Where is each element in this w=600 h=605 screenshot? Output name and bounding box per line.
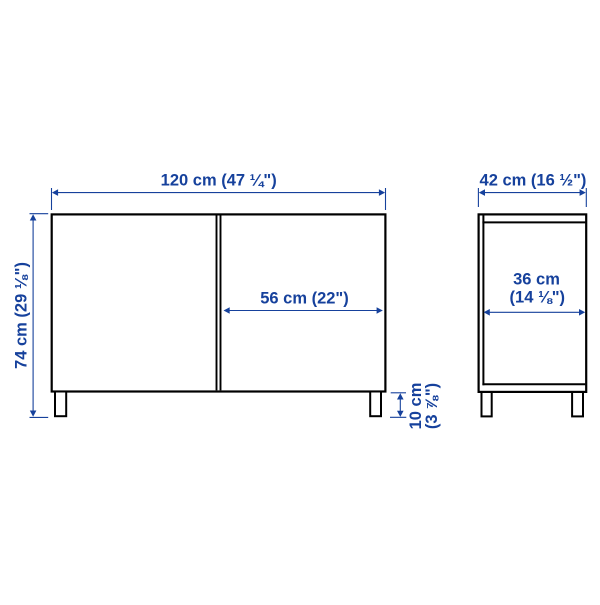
svg-text:74 cm (29 ⅛"): 74 cm (29 ⅛") bbox=[12, 262, 30, 369]
svg-text:42 cm (16 ½"): 42 cm (16 ½") bbox=[480, 172, 587, 190]
svg-text:(3 ⅞"): (3 ⅞") bbox=[423, 383, 441, 429]
svg-text:36 cm: 36 cm bbox=[513, 270, 560, 288]
svg-text:120 cm (47 ¼"): 120 cm (47 ¼") bbox=[161, 172, 277, 190]
svg-text:56 cm (22"): 56 cm (22") bbox=[260, 289, 349, 307]
svg-text:(14 ⅛"): (14 ⅛") bbox=[510, 288, 566, 306]
